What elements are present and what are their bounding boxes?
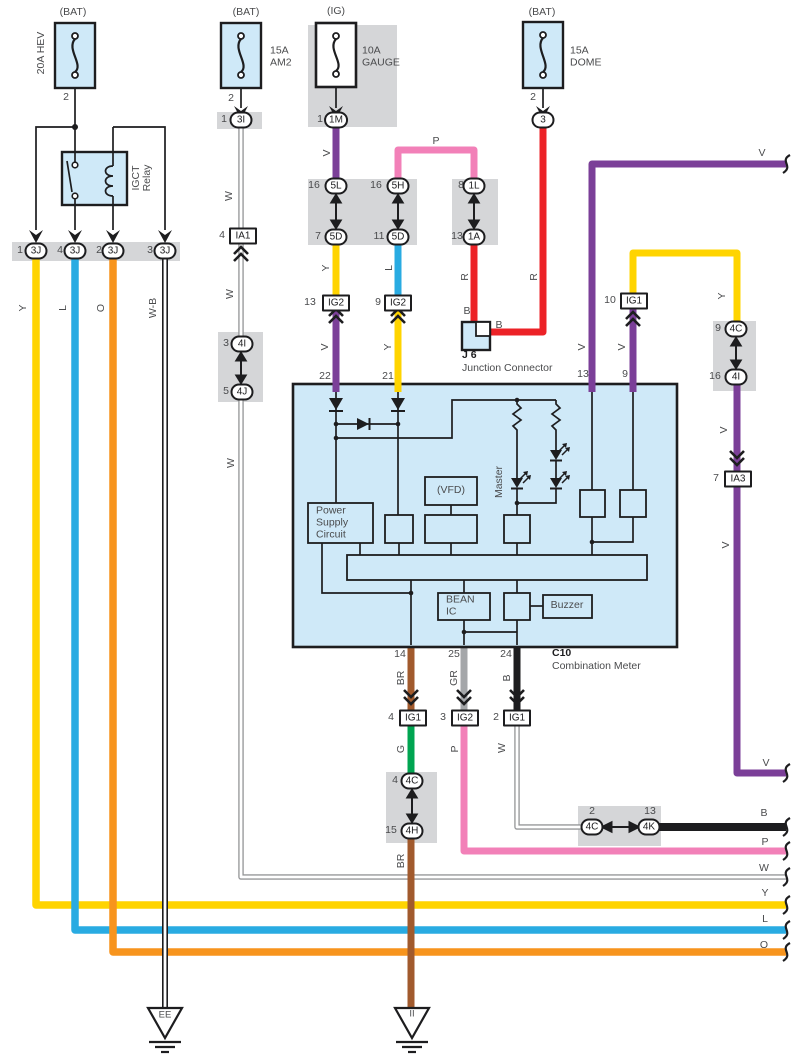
label-wire-o: O <box>96 304 108 312</box>
label-conn-ia1: IA1 <box>229 228 257 245</box>
label-pig1-4: 4 <box>388 712 394 724</box>
label-conn-ig2-3: IG2 <box>451 710 479 727</box>
label-conn-ig2-13: IG2 <box>322 295 350 312</box>
label-pig2-3: 3 <box>440 712 446 724</box>
label-pig2-13: 13 <box>304 297 316 309</box>
label-master: Master <box>494 466 506 498</box>
label-wire-y3: Y <box>383 343 395 350</box>
label-wire-p: P <box>432 136 439 148</box>
label-pig1-2: 2 <box>493 712 499 724</box>
label-p5l: 16 <box>308 180 320 192</box>
label-dome-pin2: 2 <box>530 92 536 104</box>
label-wire-v2: V <box>320 343 332 350</box>
junction-connector-j6 <box>462 322 490 350</box>
label-wire-v1: V <box>322 149 334 156</box>
label-pin24: 24 <box>500 649 512 661</box>
label-conn-4c9: 4C <box>725 321 748 338</box>
label-wire-l: L <box>58 305 70 311</box>
label-pin14: 14 <box>394 649 406 661</box>
label-relay-relay: Relay <box>142 165 154 192</box>
label-pin25: 25 <box>448 649 460 661</box>
label-pia3: 7 <box>713 473 719 485</box>
label-conn-3j-4: 3J <box>64 243 87 260</box>
label-p3j-3: 3 <box>147 245 153 257</box>
label-conn-5d7: 5D <box>325 229 348 246</box>
label-p5h: 16 <box>370 180 382 192</box>
label-wire-p2: P <box>450 745 462 752</box>
label-conn-5l: 5L <box>325 178 348 195</box>
label-wire-br1: BR <box>396 671 408 686</box>
label-p4c2: 2 <box>589 806 595 818</box>
label-p3j-1: 1 <box>17 245 23 257</box>
label-wire-v-top: V <box>758 148 765 160</box>
label-am2-pin2: 2 <box>228 93 234 105</box>
label-wire-g: G <box>396 745 408 753</box>
label-p3j-4: 4 <box>57 245 63 257</box>
label-conn-4c2: 4C <box>581 819 604 836</box>
label-hev-rating: 20A HEV <box>36 32 48 75</box>
label-am2-conn-pin: 1 <box>221 114 227 126</box>
label-j6-name: J 6 <box>462 350 477 362</box>
label-pia1: 4 <box>219 230 225 242</box>
label-wire-v3: V <box>577 343 589 350</box>
label-wire-b3: B <box>502 674 514 681</box>
label-pig2-9: 9 <box>375 297 381 309</box>
label-pin9: 9 <box>622 369 628 381</box>
fuse-hev <box>55 23 95 88</box>
label-wire-wb: W-B <box>148 298 160 318</box>
label-bat-am2: (BAT) <box>233 7 260 19</box>
label-conn-4k: 4K <box>638 819 661 836</box>
igct-relay-box <box>62 152 127 205</box>
label-wire-w3: W <box>226 458 238 468</box>
label-wire-v5: V <box>719 426 731 433</box>
label-hev-pin2: 2 <box>63 92 69 104</box>
label-wire-gr: GR <box>449 670 461 686</box>
label-wire-v7: V <box>762 758 769 770</box>
label-wire-w5: W <box>759 863 769 875</box>
label-conn-1a: 1A <box>463 229 486 246</box>
label-wire-l3: L <box>762 914 768 926</box>
label-conn-5d11: 5D <box>387 229 410 246</box>
label-wire-br2: BR <box>396 854 408 869</box>
label-wire-p3: P <box>761 837 768 849</box>
label-dome-rating: 15A DOME <box>570 45 602 69</box>
label-wire-b2: B <box>495 320 502 332</box>
label-conn-3j-3: 3J <box>154 243 177 260</box>
label-am2-rating: 15A AM2 <box>270 45 292 69</box>
fuse-dome <box>523 22 563 88</box>
label-psu: Power Supply Circuit <box>316 505 348 540</box>
label-conn-ig1-4: IG1 <box>399 710 427 727</box>
label-p4k: 13 <box>644 806 656 818</box>
label-wire-r2: R <box>529 273 541 281</box>
label-c10-desc: Combination Meter <box>552 661 641 673</box>
label-conn-4c4: 4C <box>401 773 424 790</box>
label-wire-l2: L <box>384 265 396 271</box>
label-conn-ia3: IA3 <box>724 471 752 488</box>
label-wire-r1: R <box>460 273 472 281</box>
label-wire-b4: B <box>760 808 767 820</box>
label-wire-y: Y <box>18 304 30 311</box>
label-buzzer: Buzzer <box>551 600 584 612</box>
label-conn-4h: 4H <box>401 823 424 840</box>
label-wire-v6: V <box>721 541 733 548</box>
label-pin22: 22 <box>319 371 331 383</box>
label-bat-dome: (BAT) <box>529 7 556 19</box>
label-wire-v4: V <box>617 343 629 350</box>
wiring-diagram-page: (BAT)20A HEV2(BAT)15A AM2213I(IG)10A GAU… <box>0 0 801 1063</box>
label-pin13: 13 <box>577 369 589 381</box>
label-conn-3j-1: 3J <box>25 243 48 260</box>
label-conn-ig2-9: IG2 <box>384 295 412 312</box>
label-j6-desc: Junction Connector <box>462 363 552 375</box>
label-conn-ig1-10: IG1 <box>620 293 648 310</box>
label-p4i16: 16 <box>709 371 721 383</box>
label-p4c9: 9 <box>715 323 721 335</box>
label-wire-w4: W <box>497 743 509 753</box>
label-p4h: 15 <box>385 825 397 837</box>
label-conn-3i: 3I <box>230 112 253 129</box>
label-p4c4: 4 <box>392 775 398 787</box>
label-wire-w1: W <box>224 191 236 201</box>
label-vfd: (VFD) <box>437 485 465 497</box>
label-wire-w2: W <box>225 289 237 299</box>
label-conn-5h: 5H <box>387 178 410 195</box>
label-p5d11: 11 <box>374 231 385 243</box>
label-conn-3j-2: 3J <box>102 243 125 260</box>
wiring-diagram-art <box>0 0 801 1063</box>
label-ig-gauge: (IG) <box>327 6 345 18</box>
label-conn-ig1-2: IG1 <box>503 710 531 727</box>
label-p4i: 3 <box>223 338 229 350</box>
label-bean: BEAN IC <box>446 594 475 618</box>
label-p5d7: 7 <box>315 231 321 243</box>
label-wire-y2: Y <box>321 264 333 271</box>
label-wire-y5: Y <box>761 888 768 900</box>
label-p1a: 13 <box>451 231 463 243</box>
label-conn-4i16: 4I <box>725 369 748 386</box>
label-conn-4j: 4J <box>231 384 254 401</box>
label-gnd-ee: EE <box>159 1011 172 1022</box>
label-bat-hev: (BAT) <box>60 7 87 19</box>
label-gauge-rating: 10A GAUGE <box>362 45 400 69</box>
label-c10: C10 <box>552 648 571 660</box>
label-p4j: 5 <box>223 386 229 398</box>
label-conn-3: 3 <box>532 112 555 129</box>
label-gauge-conn-pin: 1 <box>317 114 323 126</box>
label-pin21: 21 <box>382 371 394 383</box>
label-conn-1m: 1M <box>324 112 348 129</box>
label-conn-1l: 1L <box>463 178 486 195</box>
label-wire-b1: B <box>463 306 470 318</box>
fuse-gauge <box>316 23 356 87</box>
label-wire-o2: O <box>760 940 768 952</box>
junction-dot <box>72 124 78 130</box>
label-wire-y4: Y <box>717 292 729 299</box>
label-pig1-10: 10 <box>604 295 616 307</box>
label-gnd-ii: II <box>409 1010 414 1021</box>
wire-break-marks <box>783 155 790 961</box>
label-conn-4i: 4I <box>231 336 254 353</box>
fuse-am2 <box>221 23 261 88</box>
